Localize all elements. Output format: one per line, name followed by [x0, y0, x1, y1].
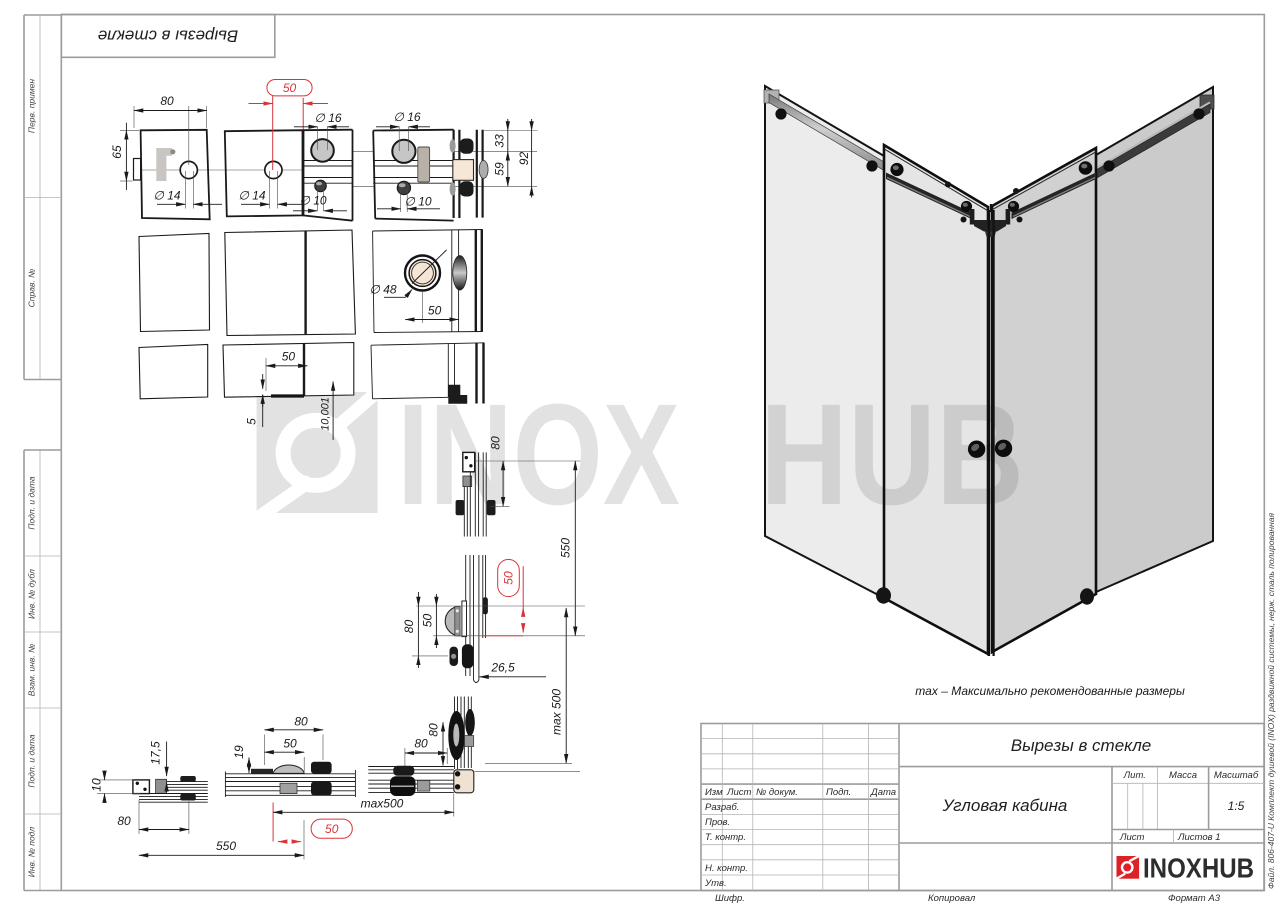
svg-text:∅ 16: ∅ 16 — [393, 110, 420, 124]
svg-text:59: 59 — [493, 162, 507, 176]
svg-text:Подп. и дата: Подп. и дата — [26, 476, 36, 529]
svg-text:80: 80 — [427, 723, 441, 737]
svg-text:1:5: 1:5 — [1228, 799, 1245, 813]
svg-text:∅ 16: ∅ 16 — [314, 111, 341, 125]
svg-text:Подп.: Подп. — [826, 787, 851, 798]
svg-text:Разраб.: Разраб. — [705, 802, 739, 813]
svg-text:50: 50 — [283, 81, 297, 95]
svg-text:80: 80 — [414, 737, 428, 751]
svg-text:Лист: Лист — [726, 787, 752, 798]
svg-text:5: 5 — [245, 418, 259, 425]
svg-text:№ докум.: № докум. — [756, 787, 798, 798]
svg-text:max500: max500 — [361, 797, 404, 811]
svg-text:Инв. № дубл: Инв. № дубл — [26, 569, 36, 619]
svg-text:INOXHUB: INOXHUB — [1143, 853, 1254, 884]
svg-text:80: 80 — [117, 814, 131, 828]
svg-text:80: 80 — [160, 94, 174, 108]
svg-text:550: 550 — [216, 839, 236, 853]
svg-text:17,5: 17,5 — [149, 741, 163, 765]
svg-text:10,001: 10,001 — [320, 397, 332, 431]
svg-text:Лист: Лист — [1119, 832, 1145, 843]
svg-text:INOX: INOX — [397, 374, 680, 535]
svg-text:80: 80 — [294, 715, 308, 729]
svg-text:33: 33 — [493, 134, 507, 148]
svg-text:Т. контр.: Т. контр. — [705, 832, 746, 843]
svg-text:50: 50 — [325, 822, 339, 836]
svg-text:max 500: max 500 — [550, 689, 564, 735]
svg-text:Угловая кабина: Угловая кабина — [942, 796, 1068, 815]
svg-text:∅ 10: ∅ 10 — [404, 195, 431, 209]
svg-text:Копировал: Копировал — [928, 893, 976, 904]
svg-text:Шифр.: Шифр. — [715, 893, 745, 904]
svg-text:∅ 10: ∅ 10 — [299, 194, 326, 208]
svg-text:Утв.: Утв. — [704, 878, 727, 889]
svg-text:50: 50 — [282, 350, 296, 364]
svg-text:65: 65 — [110, 145, 124, 159]
svg-text:Изм: Изм — [705, 787, 723, 798]
svg-text:∅ 14: ∅ 14 — [238, 189, 265, 203]
svg-text:Н. контр.: Н. контр. — [705, 863, 748, 874]
svg-text:Взам. инв. №: Взам. инв. № — [26, 644, 36, 697]
svg-text:Вырезы в стекле: Вырезы в стекле — [98, 26, 238, 45]
svg-text:Справ. №: Справ. № — [26, 269, 36, 308]
svg-text:50: 50 — [283, 737, 297, 751]
svg-text:80: 80 — [489, 436, 503, 450]
svg-text:Формат А3: Формат А3 — [1168, 893, 1221, 904]
svg-text:max – Максимально рекомендован: max – Максимально рекомендованные размер… — [915, 684, 1185, 698]
svg-text:Лит.: Лит. — [1123, 770, 1146, 781]
svg-text:10: 10 — [90, 778, 104, 792]
svg-text:50: 50 — [428, 304, 442, 318]
svg-text:Вырезы в стекле: Вырезы в стекле — [1011, 736, 1151, 755]
svg-text:26,5: 26,5 — [490, 661, 515, 675]
svg-text:Дата: Дата — [870, 787, 896, 798]
svg-text:∅ 14: ∅ 14 — [153, 189, 180, 203]
svg-text:19: 19 — [232, 745, 246, 759]
svg-text:80: 80 — [402, 620, 416, 634]
svg-text:Пров.: Пров. — [705, 817, 730, 828]
svg-text:550: 550 — [559, 538, 573, 558]
svg-text:Файл. 806-407-U Комплект душев: Файл. 806-407-U Комплект душевой (INOX) … — [1266, 513, 1276, 889]
svg-text:Перв. примен: Перв. примен — [26, 79, 36, 133]
svg-text:50: 50 — [502, 571, 516, 585]
svg-text:50: 50 — [421, 614, 435, 628]
svg-text:Масштаб: Масштаб — [1214, 770, 1259, 781]
svg-text:Листов 1: Листов 1 — [1177, 832, 1221, 843]
svg-text:Масса: Масса — [1169, 770, 1197, 781]
svg-text:92: 92 — [517, 152, 531, 166]
svg-text:Инв. № подл: Инв. № подл — [26, 827, 36, 878]
svg-text:∅ 48: ∅ 48 — [369, 283, 396, 297]
svg-text:Подп. и дата: Подп. и дата — [26, 734, 36, 787]
